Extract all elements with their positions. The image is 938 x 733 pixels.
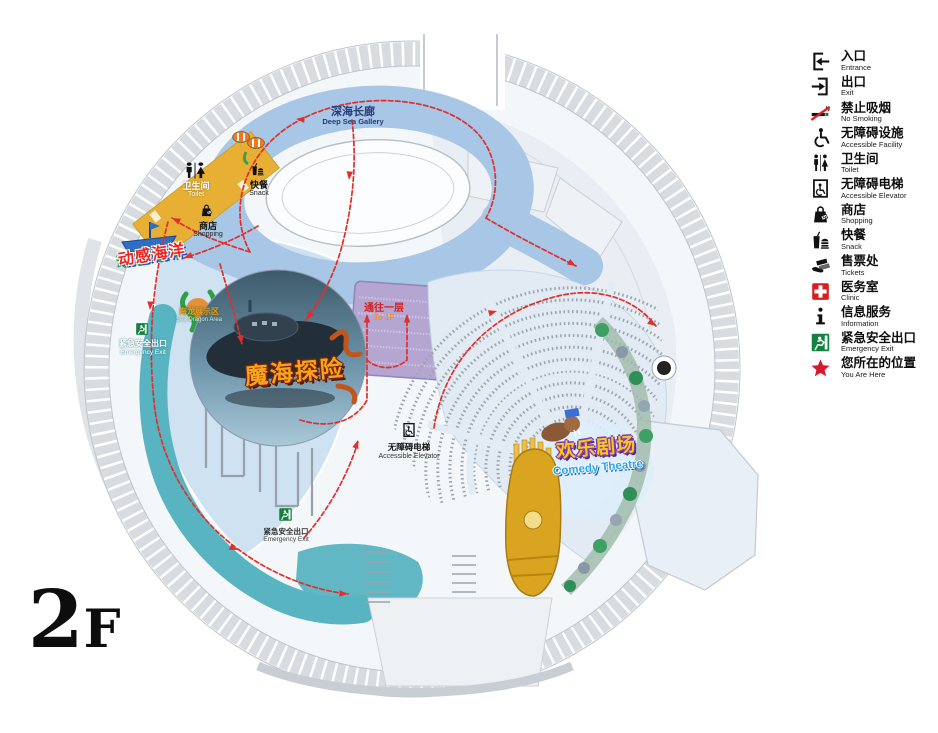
legend-label-zh: 无障碍电梯 xyxy=(841,178,906,192)
legend-item-entrance: 入口 Entrance xyxy=(810,50,936,72)
snack-label: 快餐 Snack xyxy=(249,180,268,198)
you-are-here-icon xyxy=(810,358,831,379)
label-zh: 紧急安全出口 xyxy=(119,340,167,349)
label-en: To 1F xyxy=(364,314,404,323)
label-zh: 商店 xyxy=(193,221,223,231)
legend-item-you-are-here: 您所在的位置 You Are Here xyxy=(810,357,936,379)
label-en: Deep Sea Gallery xyxy=(322,118,383,126)
legend: 入口 Entrance 出口 Exit 禁止吸烟 No Smoking 无障碍设… xyxy=(810,50,936,383)
label-en: Sea Dragon Area xyxy=(176,317,222,324)
accessible-elevator-label: 无障碍电梯 Accessible Elevator xyxy=(378,443,439,460)
legend-label-en: Emergency Exit xyxy=(841,345,916,353)
entrance-icon xyxy=(810,51,831,72)
legend-item-toilet: 卫生间 Toilet xyxy=(810,152,936,174)
emergency-exit-icon xyxy=(135,322,149,336)
snack-icon xyxy=(810,230,831,251)
toilet-label: 卫生间 Toilet xyxy=(182,181,209,199)
legend-label-zh: 您所在的位置 xyxy=(841,357,916,371)
information-icon xyxy=(810,306,831,327)
legend-label-zh: 快餐 xyxy=(841,229,866,243)
label-en: Snack xyxy=(249,190,268,198)
legend-label-zh: 入口 xyxy=(841,50,871,64)
legend-label-en: Tickets xyxy=(841,269,879,277)
legend-label-zh: 卫生间 xyxy=(841,153,879,167)
accessible-elevator-icon xyxy=(401,421,417,439)
accessible-elevator-icon xyxy=(810,178,831,199)
legend-label-zh: 售票处 xyxy=(841,255,879,269)
label-en: Shopping xyxy=(193,231,223,239)
label-zh: 海龙展示区 xyxy=(176,308,222,317)
legend-label-en: Exit xyxy=(841,89,866,97)
legend-label-en: Clinic xyxy=(841,294,879,302)
shopping-icon xyxy=(199,203,214,218)
legend-label-zh: 禁止吸烟 xyxy=(841,102,891,116)
label-zh: 快餐 xyxy=(249,180,268,190)
clinic-icon xyxy=(810,281,831,302)
emergency-exit-left-label: 紧急安全出口 Emergency Exit xyxy=(119,340,167,356)
no-smoking-icon xyxy=(810,102,831,123)
floor-map xyxy=(0,0,938,733)
label-en: Toilet xyxy=(182,191,209,199)
label-zh: 无障碍电梯 xyxy=(378,443,439,453)
legend-item-no-smoking: 禁止吸烟 No Smoking xyxy=(810,101,936,123)
legend-item-snack: 快餐 Snack xyxy=(810,229,936,251)
floor-label: 2F xyxy=(28,572,121,666)
legend-item-clinic: 医务室 Clinic xyxy=(810,280,936,302)
to-first-floor-label: 通往一层 To 1F xyxy=(364,303,404,323)
legend-label-en: You Are Here xyxy=(841,371,916,379)
legend-item-emergency-exit: 紧急安全出口 Emergency Exit xyxy=(810,332,936,354)
tickets-icon xyxy=(810,255,831,276)
legend-label-en: Information xyxy=(841,320,891,328)
deep-sea-gallery-label: 深海长廊 Deep Sea Gallery xyxy=(322,106,383,127)
label-en: Emergency Exit xyxy=(263,536,309,543)
toilet-icon xyxy=(181,161,209,181)
legend-label-en: Toilet xyxy=(841,166,879,174)
legend-item-shopping: 商店 Shopping xyxy=(810,204,936,226)
label-zh: 紧急安全出口 xyxy=(263,528,309,536)
legend-item-information: 信息服务 Information xyxy=(810,306,936,328)
shopping-icon xyxy=(810,204,831,225)
legend-label-en: Accessible Facility xyxy=(841,141,904,149)
shopping-label: 商店 Shopping xyxy=(193,221,223,239)
legend-label-en: Snack xyxy=(841,243,866,251)
legend-label-zh: 紧急安全出口 xyxy=(841,332,916,346)
comedy-theatre-logo: 欢乐剧场 Comedy Theatre xyxy=(550,434,643,479)
label-en: Accessible Elevator xyxy=(378,453,439,461)
snack-icon xyxy=(250,162,265,177)
label-zh: 卫生间 xyxy=(182,181,209,191)
legend-label-zh: 医务室 xyxy=(841,281,879,295)
legend-label-zh: 出口 xyxy=(841,76,866,90)
emergency-exit-icon xyxy=(278,507,293,522)
accessible-facility-icon xyxy=(810,127,831,148)
legend-label-zh: 商店 xyxy=(841,204,873,218)
emergency-exit-icon xyxy=(810,332,831,353)
emergency-exit-bottom-label: 紧急安全出口 Emergency Exit xyxy=(263,528,309,544)
legend-item-accessible-elevator: 无障碍电梯 Accessible Elevator xyxy=(810,178,936,200)
legend-label-zh: 信息服务 xyxy=(841,306,891,320)
sea-dragon-label: 海龙展示区 Sea Dragon Area xyxy=(176,308,222,324)
legend-label-zh: 无障碍设施 xyxy=(841,127,904,141)
legend-item-accessible-facility: 无障碍设施 Accessible Facility xyxy=(810,127,936,149)
legend-label-en: Accessible Elevator xyxy=(841,192,906,200)
legend-label-en: No Smoking xyxy=(841,115,891,123)
legend-item-tickets: 售票处 Tickets xyxy=(810,255,936,277)
exit-icon xyxy=(810,76,831,97)
legend-label-en: Entrance xyxy=(841,64,871,72)
label-en: Emergency Exit xyxy=(119,349,167,356)
floor-map-page: 深海长廊 Deep Sea Gallery 卫生间 Toilet 快餐 Snac… xyxy=(0,0,938,733)
legend-label-en: Shopping xyxy=(841,217,873,225)
toilet-icon xyxy=(810,153,831,174)
legend-item-exit: 出口 Exit xyxy=(810,76,936,98)
